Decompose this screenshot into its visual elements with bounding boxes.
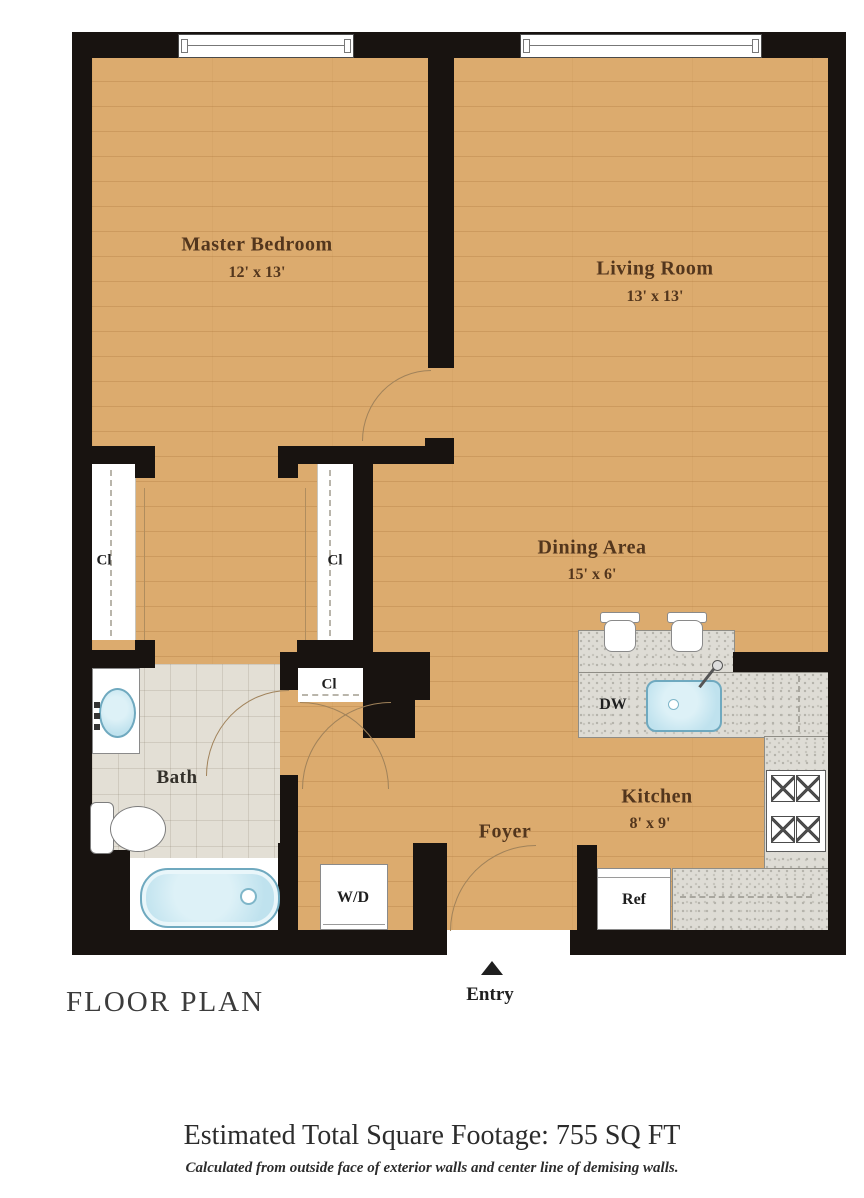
wall-bottom-right (570, 930, 846, 955)
closet-3-label: Cl (322, 677, 337, 694)
wall-closet3-top (297, 640, 367, 668)
wall-bottom-left (72, 930, 447, 955)
living-room-window (520, 34, 762, 58)
window-end-cap (523, 39, 530, 53)
closet-2-door (305, 488, 306, 640)
wall-cap-closet1-top (135, 464, 155, 478)
toilet-bowl (110, 806, 166, 852)
floor-plan-page: Master Bedroom 12' x 13' Living Room 13'… (0, 0, 864, 1198)
dining-area-label: Dining Area (537, 537, 646, 560)
refrigerator-door-line (598, 877, 670, 878)
bath-label: Bath (156, 767, 197, 789)
wall-cap-closet2-top (278, 464, 298, 478)
window-end-cap (181, 39, 188, 53)
wall-wd-left (278, 843, 298, 930)
closet-1-label: Cl (97, 553, 112, 570)
entry-label: Entry (466, 984, 514, 1006)
washer-dryer-label: W/D (337, 889, 369, 907)
living-room-dims: 13' x 13' (627, 288, 684, 306)
bar-stool-seat (604, 620, 636, 652)
window-pane-line (527, 45, 755, 46)
bedroom-window (178, 34, 354, 58)
bath-faucet-icon (94, 702, 100, 730)
kitchen-sink (646, 680, 722, 732)
closet-3-rod (302, 694, 359, 696)
wall-closet2-right (353, 446, 373, 656)
stove-burner (771, 775, 795, 802)
bar-stool-seat (671, 620, 703, 652)
stove (766, 770, 826, 852)
footer-total-square-footage: Estimated Total Square Footage: 755 SQ F… (0, 1120, 864, 1152)
kitchen-label: Kitchen (621, 786, 692, 809)
kitchen-dims: 8' x 9' (630, 815, 671, 833)
bathtub-drain (240, 888, 257, 905)
wall-bedroom-living-divider (428, 56, 454, 368)
master-bedroom-dims: 12' x 13' (229, 264, 286, 282)
cabinet-dashed-line-vertical (798, 676, 800, 732)
wall-divider-stub (425, 438, 454, 464)
stove-burner (796, 775, 820, 802)
window-pane-line (185, 45, 347, 46)
wall-under-bedroom-left (92, 446, 155, 464)
wall-bath-east-lower (280, 775, 298, 847)
master-bedroom-label: Master Bedroom (181, 234, 332, 257)
wall-bath-southwest (72, 850, 130, 930)
wall-foyer-dining-a (363, 652, 430, 700)
page-title: FLOOR PLAN (66, 986, 264, 1019)
bath-sink (99, 688, 136, 738)
wall-wd-right (413, 843, 447, 930)
washer-dryer-line (323, 924, 385, 925)
dining-area-dims: 15' x 6' (568, 566, 617, 584)
wall-right (828, 32, 846, 955)
stove-burner (771, 816, 795, 843)
wall-bath-top (92, 650, 155, 668)
kitchen-faucet-knob (712, 660, 723, 671)
stove-burner (796, 816, 820, 843)
window-end-cap (344, 39, 351, 53)
wall-bath-east-upper (280, 652, 298, 690)
wall-dining-kitchen (733, 652, 846, 672)
closet-2-label: Cl (328, 553, 343, 570)
wall-left (72, 32, 92, 955)
cabinet-dashed-line-horizontal (680, 896, 812, 898)
living-room-label: Living Room (596, 258, 713, 281)
kitchen-counter-bottom (672, 868, 830, 932)
refrigerator-label: Ref (622, 891, 646, 909)
closet-1-door (144, 488, 145, 640)
window-end-cap (752, 39, 759, 53)
wall-kitchen-stub (577, 845, 597, 930)
bathtub (140, 868, 280, 928)
kitchen-sink-drain (668, 699, 679, 710)
foyer-label: Foyer (479, 821, 531, 844)
entry-arrow-icon (481, 961, 503, 975)
footer-calculation-note: Calculated from outside face of exterior… (0, 1160, 864, 1177)
dishwasher-label: DW (599, 696, 627, 714)
